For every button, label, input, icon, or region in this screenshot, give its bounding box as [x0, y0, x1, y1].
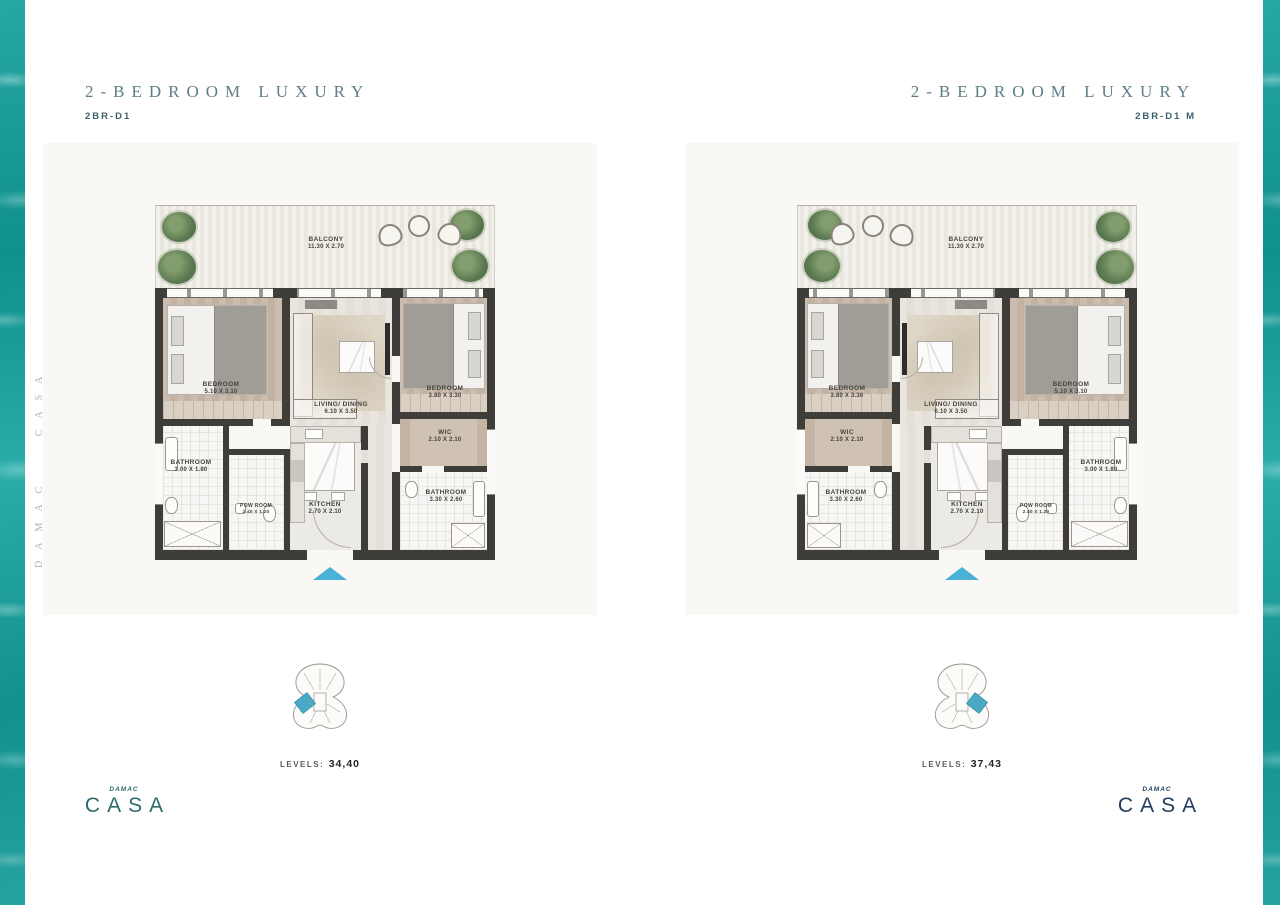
- wall: [1002, 449, 1063, 455]
- wall: [400, 466, 422, 472]
- plant-icon: [452, 250, 488, 282]
- tv-console: [955, 300, 987, 309]
- pillow: [811, 350, 824, 378]
- room-label-living: LIVING/ DINING 6.10 X 3.50: [901, 401, 1001, 417]
- wall: [361, 426, 368, 450]
- shower: [1071, 521, 1128, 547]
- kitchen-sink: [305, 429, 323, 439]
- wall: [797, 412, 892, 419]
- wall: [924, 426, 931, 450]
- wall: [229, 449, 290, 455]
- pillow: [171, 316, 184, 346]
- chair-icon: [408, 215, 430, 237]
- room-label-living: LIVING/ DINING 6.10 X 3.50: [291, 401, 391, 417]
- blanket: [404, 304, 454, 388]
- dining-chair: [947, 492, 961, 501]
- unit-code: 2BR-D1 M: [911, 111, 1196, 122]
- room-label-balcony: BALCONY 11.30 X 2.70: [796, 236, 1136, 252]
- wall: [282, 298, 290, 424]
- brochure-page: DAMAC CASA ESCAPE TO AN ISLAND IN THE SK…: [0, 0, 1280, 905]
- toilet: [165, 497, 178, 514]
- room-label-bathroom-large: BATHROOM 3.30 X 2.60: [803, 489, 889, 505]
- dining-chair: [331, 492, 345, 501]
- room-label-bathroom-large: BATHROOM 3.30 X 2.60: [403, 489, 489, 505]
- plant-icon: [158, 250, 196, 284]
- wall-pier: [797, 288, 809, 298]
- wall-pier: [1125, 288, 1137, 298]
- keyplan-right: [685, 660, 1239, 743]
- water-texture-left: [0, 0, 25, 905]
- damac-casa-logo: DAMAC CASA: [84, 786, 164, 818]
- room-label-bedroom-right: BEDROOM 3.80 X 3.30: [401, 385, 489, 401]
- window-band: [155, 288, 495, 298]
- room-label-bedroom-left: BEDROOM 5.10 X 3.10: [165, 381, 277, 397]
- wall: [487, 298, 495, 550]
- pillow: [811, 312, 824, 340]
- chair-icon: [862, 215, 884, 237]
- wall: [985, 550, 1137, 560]
- keyplan-left: [43, 660, 597, 743]
- plant-icon: [1096, 250, 1134, 284]
- room-label-balcony: BALCONY 11.30 X 2.70: [156, 236, 496, 252]
- wall-pier: [381, 288, 403, 298]
- wall: [1063, 426, 1069, 550]
- wardrobe-left: [163, 401, 282, 419]
- wall: [892, 382, 900, 424]
- kitchen-counter: [290, 426, 361, 443]
- floorplan-sheet-left: BALCONY 11.30 X 2.70: [43, 143, 597, 615]
- wall: [155, 550, 307, 560]
- page-title: 2-BEDROOM LUXURY: [85, 82, 370, 102]
- wall-pier: [483, 288, 495, 298]
- floorplan-sheet-right: BALCONY 11.30 X 2.70: [685, 143, 1239, 615]
- wall: [797, 298, 805, 550]
- blanket: [838, 304, 888, 388]
- pillow: [1108, 316, 1121, 346]
- toilet: [1114, 497, 1127, 514]
- shower: [807, 523, 841, 548]
- wall: [892, 298, 900, 356]
- left-header: 2-BEDROOM LUXURY 2BR-D1: [85, 82, 370, 122]
- wall: [1002, 449, 1008, 550]
- wall-pier: [995, 288, 1019, 298]
- dining-chair: [303, 492, 317, 501]
- room-label-kitchen: KITCHEN 2.70 X 2.10: [927, 501, 1007, 517]
- bed: [403, 303, 485, 389]
- window-band: [797, 288, 1137, 298]
- room-label-bathroom-small: BATHROOM 3.00 X 1.80: [159, 459, 223, 475]
- levels-left: LEVELS: 34,40: [43, 754, 597, 772]
- pillow: [468, 312, 481, 340]
- dining-table: [937, 441, 993, 491]
- wall: [870, 466, 892, 472]
- pillow: [468, 350, 481, 378]
- floorplan-2br-d1: BALCONY 11.30 X 2.70: [155, 205, 495, 560]
- balcony-area: BALCONY 11.30 X 2.70: [797, 205, 1137, 288]
- kitchen-counter: [931, 426, 1002, 443]
- room-label-pow: POW ROOM 2.40 X 1.20: [1007, 503, 1065, 516]
- right-header: 2-BEDROOM LUXURY 2BR-D1 M: [911, 82, 1196, 122]
- building-footprint-icon: [916, 660, 1008, 738]
- floorplan-2br-d1-m: BALCONY 11.30 X 2.70: [797, 205, 1137, 560]
- balcony-area: BALCONY 11.30 X 2.70: [155, 205, 495, 288]
- kitchen-sink: [969, 429, 987, 439]
- shower: [164, 521, 221, 547]
- room-label-wic: WIC 2.10 X 2.10: [803, 429, 891, 445]
- room-label-pow: POW ROOM 2.40 X 1.20: [227, 503, 285, 516]
- wardrobe-left: [1010, 401, 1129, 419]
- stove: [988, 460, 1001, 482]
- floor-corridor: [368, 426, 392, 550]
- wall: [892, 472, 900, 550]
- floor-corridor: [900, 426, 924, 550]
- room-label-bedroom-large: BEDROOM 5.10 X 3.10: [1015, 381, 1127, 397]
- bed: [807, 303, 889, 389]
- unit-code: 2BR-D1: [85, 111, 370, 122]
- wall: [392, 472, 400, 550]
- wall: [271, 419, 290, 426]
- wall: [392, 382, 400, 424]
- wall-pier: [273, 288, 297, 298]
- pillow: [1108, 354, 1121, 384]
- page-title: 2-BEDROOM LUXURY: [911, 82, 1196, 102]
- pillow: [171, 354, 184, 384]
- wall: [392, 298, 400, 356]
- levels-right: LEVELS: 37,43: [685, 754, 1239, 772]
- tv-console: [305, 300, 337, 309]
- room-label-bathroom-small: BATHROOM 3.00 X 1.80: [1069, 459, 1133, 475]
- room-label-kitchen: KITCHEN 2.70 X 2.10: [285, 501, 365, 517]
- plant-icon: [804, 250, 840, 282]
- water-texture-right: [1263, 0, 1280, 905]
- wall: [400, 412, 495, 419]
- wall: [223, 426, 229, 550]
- dining-table: [299, 441, 355, 491]
- stove: [291, 460, 304, 482]
- shower: [451, 523, 485, 548]
- wall: [1002, 419, 1021, 426]
- room-label-bedroom-small: BEDROOM 3.80 X 3.30: [803, 385, 891, 401]
- wall: [353, 550, 495, 560]
- wall: [797, 550, 939, 560]
- entrance-arrow-icon: [313, 567, 347, 580]
- wall-pier: [155, 288, 167, 298]
- wall: [1002, 298, 1010, 424]
- wall-pier: [889, 288, 911, 298]
- wall: [155, 419, 253, 426]
- entrance-arrow-icon: [945, 567, 979, 580]
- wall: [1039, 419, 1137, 426]
- room-label-wic: WIC 2.10 X 2.10: [401, 429, 489, 445]
- damac-casa-logo: DAMAC CASA: [1117, 786, 1197, 818]
- building-footprint-icon: [274, 660, 366, 738]
